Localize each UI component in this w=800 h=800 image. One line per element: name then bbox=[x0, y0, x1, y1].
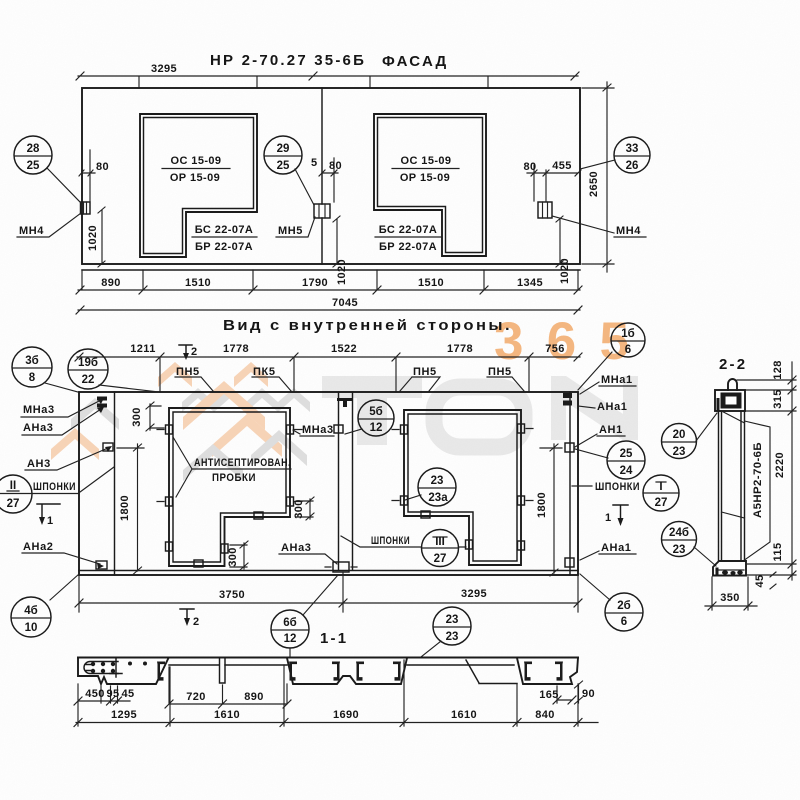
svg-text:315: 315 bbox=[772, 389, 784, 409]
svg-text:ПН5: ПН5 bbox=[176, 366, 200, 378]
svg-text:1690: 1690 bbox=[333, 709, 359, 721]
svg-text:АНа1: АНа1 bbox=[597, 401, 628, 413]
svg-text:1610: 1610 bbox=[451, 709, 477, 721]
svg-text:МНа1: МНа1 bbox=[601, 374, 633, 386]
svg-text:300: 300 bbox=[227, 547, 239, 567]
svg-text:29: 29 bbox=[277, 143, 290, 155]
svg-text:25: 25 bbox=[620, 448, 633, 460]
svg-text:2220: 2220 bbox=[774, 452, 786, 478]
svg-text:1020: 1020 bbox=[559, 258, 571, 284]
svg-text:1: 1 bbox=[605, 512, 612, 524]
svg-text:27: 27 bbox=[7, 498, 20, 510]
svg-text:23: 23 bbox=[673, 544, 686, 556]
svg-text:БР 22-07А: БР 22-07А bbox=[379, 241, 437, 253]
svg-text:45: 45 bbox=[121, 688, 134, 700]
svg-text:1-1: 1-1 bbox=[320, 630, 348, 647]
svg-text:III: III bbox=[435, 536, 445, 548]
svg-text:365: 365 bbox=[494, 312, 629, 371]
svg-text:1020: 1020 bbox=[87, 225, 99, 251]
svg-text:80: 80 bbox=[329, 160, 342, 172]
svg-text:БР 22-07А: БР 22-07А bbox=[195, 241, 253, 253]
svg-text:3б: 3б bbox=[25, 355, 39, 367]
svg-text:АНа1: АНа1 bbox=[601, 542, 632, 554]
svg-text:26: 26 bbox=[626, 160, 639, 172]
svg-text:2-2: 2-2 bbox=[719, 356, 747, 373]
svg-text:5: 5 bbox=[311, 157, 318, 169]
svg-text:350: 350 bbox=[720, 592, 740, 604]
svg-text:33: 33 bbox=[626, 143, 639, 155]
svg-text:8: 8 bbox=[29, 372, 36, 384]
svg-text:ПН5: ПН5 bbox=[488, 366, 512, 378]
svg-text:I: I bbox=[659, 481, 662, 493]
svg-text:6: 6 bbox=[625, 344, 631, 356]
svg-text:890: 890 bbox=[244, 691, 264, 703]
svg-text:МН4: МН4 bbox=[19, 225, 44, 237]
svg-text:ШПОНКИ: ШПОНКИ bbox=[595, 481, 640, 493]
svg-text:3295: 3295 bbox=[151, 63, 177, 75]
svg-text:1800: 1800 bbox=[536, 492, 548, 518]
svg-text:45: 45 bbox=[754, 574, 766, 587]
svg-text:1778: 1778 bbox=[447, 343, 473, 355]
svg-text:Вид с внутренней стороны.: Вид с внутренней стороны. bbox=[223, 317, 512, 334]
svg-text:2650: 2650 bbox=[588, 171, 600, 197]
svg-text:27: 27 bbox=[655, 497, 668, 509]
svg-text:1: 1 bbox=[47, 515, 54, 527]
svg-text:80: 80 bbox=[96, 161, 109, 173]
svg-text:128: 128 bbox=[772, 360, 784, 380]
svg-text:890: 890 bbox=[101, 277, 121, 289]
svg-text:1522: 1522 bbox=[331, 343, 357, 355]
svg-text:720: 720 bbox=[186, 691, 206, 703]
svg-text:23: 23 bbox=[673, 446, 686, 458]
svg-text:МНа3: МНа3 bbox=[302, 424, 334, 436]
svg-text:АНа2: АНа2 bbox=[23, 541, 54, 553]
svg-text:1510: 1510 bbox=[418, 277, 444, 289]
svg-text:840: 840 bbox=[535, 709, 555, 721]
svg-text:ОС 15-09: ОС 15-09 bbox=[401, 155, 452, 167]
svg-text:10: 10 bbox=[25, 622, 38, 634]
svg-text:7045: 7045 bbox=[332, 297, 358, 309]
svg-text:165: 165 bbox=[539, 689, 559, 701]
svg-text:А5НР2-70-6Б: А5НР2-70-6Б bbox=[752, 442, 764, 518]
svg-text:1211: 1211 bbox=[130, 343, 155, 355]
svg-text:25: 25 bbox=[27, 160, 40, 172]
svg-text:3295: 3295 bbox=[461, 588, 487, 600]
svg-text:АН1: АН1 bbox=[599, 424, 623, 436]
svg-text:1510: 1510 bbox=[185, 277, 211, 289]
svg-text:ПРОБКИ: ПРОБКИ bbox=[212, 472, 256, 484]
svg-text:80: 80 bbox=[523, 161, 536, 173]
svg-text:23а: 23а bbox=[428, 492, 448, 504]
svg-text:4б: 4б bbox=[24, 605, 38, 617]
svg-text:МН5: МН5 bbox=[278, 225, 303, 237]
svg-text:450: 450 bbox=[85, 688, 105, 700]
svg-text:1790: 1790 bbox=[302, 277, 328, 289]
svg-text:25: 25 bbox=[277, 160, 290, 172]
svg-text:МН4: МН4 bbox=[616, 225, 641, 237]
svg-text:12: 12 bbox=[284, 633, 297, 645]
svg-text:756: 756 bbox=[545, 343, 565, 355]
svg-text:24б: 24б bbox=[669, 527, 689, 539]
svg-text:300: 300 bbox=[131, 407, 143, 427]
svg-text:1610: 1610 bbox=[214, 709, 240, 721]
svg-text:АНТИСЕПТИРОВАН.: АНТИСЕПТИРОВАН. bbox=[194, 457, 291, 469]
svg-text:12: 12 bbox=[370, 422, 383, 434]
svg-text:300: 300 bbox=[293, 499, 305, 519]
svg-text:6б: 6б bbox=[283, 617, 297, 629]
svg-text:ФАСАД: ФАСАД bbox=[382, 53, 448, 70]
svg-text:1778: 1778 bbox=[223, 343, 249, 355]
svg-text:23: 23 bbox=[446, 631, 459, 643]
svg-text:6: 6 bbox=[621, 616, 627, 628]
svg-text:27: 27 bbox=[434, 553, 447, 565]
svg-text:1295: 1295 bbox=[111, 709, 137, 721]
svg-text:1020: 1020 bbox=[336, 259, 348, 285]
svg-text:1345: 1345 bbox=[517, 277, 543, 289]
svg-text:115: 115 bbox=[772, 543, 784, 562]
svg-text:1800: 1800 bbox=[119, 495, 131, 521]
svg-text:ПК5: ПК5 bbox=[253, 366, 276, 378]
svg-text:АНа3: АНа3 bbox=[281, 542, 312, 554]
svg-text:ОС 15-09: ОС 15-09 bbox=[171, 155, 222, 167]
svg-text:БС 22-07А: БС 22-07А bbox=[195, 224, 253, 236]
svg-text:23: 23 bbox=[446, 614, 459, 626]
svg-text:20: 20 bbox=[673, 429, 686, 441]
svg-text:ШПОНКИ: ШПОНКИ bbox=[371, 535, 410, 547]
svg-text:ШПОНКИ: ШПОНКИ bbox=[33, 481, 76, 493]
svg-text:2: 2 bbox=[193, 616, 200, 628]
svg-text:АНа3: АНа3 bbox=[23, 422, 54, 434]
svg-text:24: 24 bbox=[620, 465, 633, 477]
svg-text:23: 23 bbox=[431, 475, 444, 487]
svg-text:5б: 5б bbox=[369, 406, 383, 418]
svg-text:НР 2-70.27 35-6Б: НР 2-70.27 35-6Б bbox=[210, 52, 366, 69]
svg-text:ОР 15-09: ОР 15-09 bbox=[400, 172, 450, 184]
svg-text:II: II bbox=[10, 480, 16, 492]
svg-text:2: 2 bbox=[191, 346, 198, 358]
svg-text:2б: 2б bbox=[617, 600, 631, 612]
svg-text:95: 95 bbox=[106, 688, 119, 700]
svg-text:455: 455 bbox=[552, 160, 572, 172]
svg-text:1б: 1б bbox=[621, 328, 635, 340]
svg-text:ОР 15-09: ОР 15-09 bbox=[170, 172, 220, 184]
svg-text:МНа3: МНа3 bbox=[23, 404, 55, 416]
svg-text:ПН5: ПН5 bbox=[413, 366, 437, 378]
svg-text:28: 28 bbox=[27, 143, 40, 155]
svg-text:22: 22 bbox=[82, 374, 95, 386]
svg-text:3750: 3750 bbox=[219, 589, 245, 601]
svg-text:90: 90 bbox=[582, 688, 595, 700]
svg-text:БС 22-07А: БС 22-07А bbox=[379, 224, 437, 236]
svg-text:АН3: АН3 bbox=[27, 458, 51, 470]
svg-text:19б: 19б bbox=[78, 357, 98, 369]
